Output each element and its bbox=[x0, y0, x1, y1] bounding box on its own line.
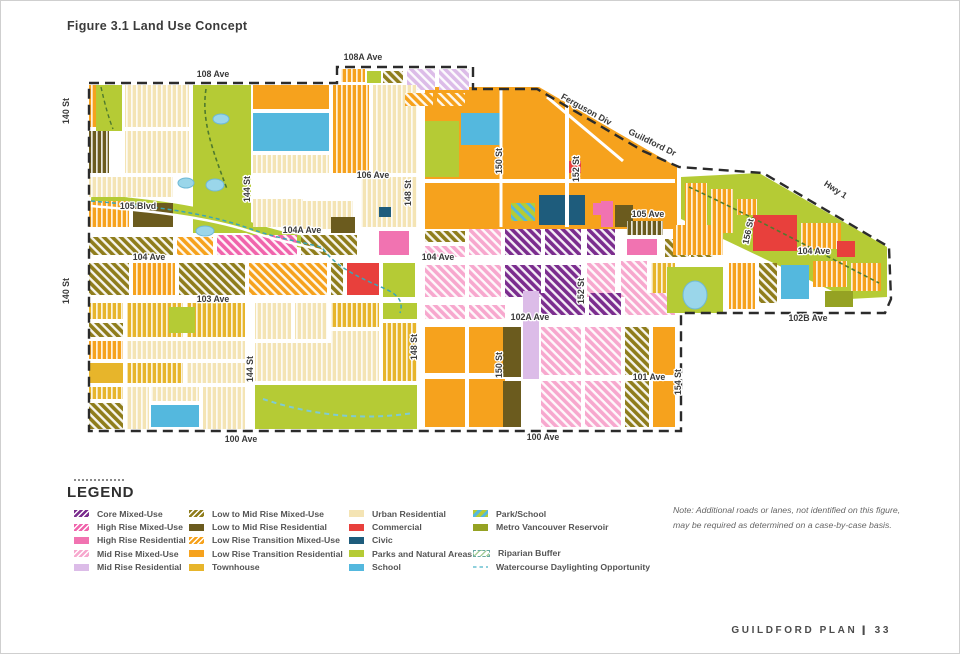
street-label: 105 Ave bbox=[632, 209, 665, 219]
parcel-overlay bbox=[405, 93, 433, 106]
legend-item-label: Metro Vancouver Reservoir bbox=[496, 522, 609, 532]
parcel bbox=[653, 381, 675, 427]
street-label: 108A Ave bbox=[344, 52, 383, 62]
parcel bbox=[461, 113, 501, 145]
parcel bbox=[383, 303, 417, 319]
parcel bbox=[379, 207, 391, 217]
parcel bbox=[653, 327, 675, 375]
parcel-overlay bbox=[331, 331, 379, 381]
parcel bbox=[503, 327, 521, 377]
legend-item: High Rise Mixed-Use bbox=[74, 520, 186, 533]
parcel-overlay bbox=[511, 203, 535, 221]
legend-column: Park/SchoolMetro Vancouver ReservoirRipa… bbox=[473, 507, 650, 574]
parcel-overlay bbox=[127, 341, 245, 359]
street-label: 144 St bbox=[242, 176, 252, 202]
legend-item-label: Parks and Natural Areas bbox=[372, 549, 472, 559]
legend-item-label: Riparian Buffer bbox=[498, 548, 561, 558]
legend-item-label: Mid Rise Mixed-Use bbox=[97, 549, 179, 559]
parcel-overlay bbox=[217, 235, 297, 255]
legend-swatch-cv bbox=[349, 537, 364, 544]
parcel-overlay bbox=[541, 381, 581, 427]
legend-swatch-ur bbox=[349, 510, 364, 517]
parcel bbox=[379, 231, 409, 255]
street-label: Hwy 1 bbox=[822, 178, 849, 200]
pond bbox=[196, 226, 214, 236]
street-label: 104A Ave bbox=[283, 225, 322, 235]
parcel-overlay bbox=[469, 229, 501, 255]
legend-item-label: Park/School bbox=[496, 509, 546, 519]
legend-swatch-wd bbox=[473, 566, 488, 568]
parcel bbox=[523, 291, 539, 379]
legend-divider bbox=[74, 479, 124, 481]
legend-item-label: Low to Mid Rise Residential bbox=[212, 522, 327, 532]
legend-item: School bbox=[349, 561, 472, 574]
note-line: may be required as determined on a case-… bbox=[673, 518, 913, 533]
legend-item: Parks and Natural Areas bbox=[349, 547, 472, 560]
legend-swatch-rb bbox=[473, 550, 490, 557]
parcel-overlay bbox=[673, 225, 723, 255]
legend-item: Core Mixed-Use bbox=[74, 507, 186, 520]
parcel bbox=[825, 291, 853, 307]
parcel bbox=[753, 215, 797, 251]
note-line: Note: Additional roads or lanes, not ide… bbox=[673, 503, 913, 518]
parcel-overlay bbox=[133, 263, 175, 295]
parcel-overlay bbox=[759, 263, 777, 303]
parcel bbox=[253, 113, 329, 151]
parcel-overlay bbox=[545, 229, 581, 255]
legend-item: Mid Rise Residential bbox=[74, 561, 186, 574]
parcel-overlay bbox=[89, 341, 123, 359]
legend-item-label: High Rise Residential bbox=[97, 535, 186, 545]
parcel-overlay bbox=[587, 263, 615, 297]
street-label: 106 Ave bbox=[357, 170, 390, 180]
parcel-overlay bbox=[125, 85, 189, 127]
street-label: 140 St bbox=[61, 98, 71, 124]
pond bbox=[206, 179, 224, 191]
parcel bbox=[89, 363, 123, 383]
parcel bbox=[837, 241, 855, 257]
pond bbox=[213, 114, 229, 124]
legend-swatch-sc bbox=[349, 564, 364, 571]
legend-item: Low Rise Transition Mixed-Use bbox=[189, 534, 343, 547]
parcel bbox=[627, 239, 657, 255]
parcel-overlay bbox=[89, 131, 109, 173]
legend-item-label: Core Mixed-Use bbox=[97, 509, 163, 519]
parcel-overlay bbox=[625, 381, 649, 427]
legend-item-label: Townhouse bbox=[212, 562, 260, 572]
legend-item-label: Watercourse Daylighting Opportunity bbox=[496, 562, 650, 572]
parcel bbox=[469, 379, 505, 427]
parcel-overlay bbox=[333, 85, 369, 173]
legend-swatch-ltm bbox=[189, 537, 204, 544]
legend-item: Park/School bbox=[473, 507, 650, 520]
parcel-overlay bbox=[187, 363, 245, 383]
legend-item: Urban Residential bbox=[349, 507, 472, 520]
parcel-overlay bbox=[585, 327, 621, 375]
parcel-overlay bbox=[439, 69, 469, 90]
parcel-overlay bbox=[89, 303, 123, 319]
parcel-overlay bbox=[737, 199, 757, 215]
legend-item: Civic bbox=[349, 534, 472, 547]
parcel bbox=[367, 71, 381, 83]
legend-item-label: School bbox=[372, 562, 401, 572]
parcel-overlay bbox=[255, 303, 291, 339]
street-label: 154 St bbox=[673, 369, 683, 395]
street-label: 100 Ave bbox=[225, 434, 258, 444]
parcel-overlay bbox=[589, 293, 621, 315]
legend-item-label: Civic bbox=[372, 535, 393, 545]
legend-swatch-cm bbox=[74, 510, 89, 517]
legend-item: Mid Rise Mixed-Use bbox=[74, 547, 186, 560]
street-label: 104 Ave bbox=[133, 252, 166, 262]
street-label: 102A Ave bbox=[511, 312, 550, 322]
parcel-overlay bbox=[89, 177, 173, 197]
legend-item-label: Urban Residential bbox=[372, 509, 446, 519]
street-label: 152 St bbox=[576, 278, 586, 304]
street-label: 150 St bbox=[494, 148, 504, 174]
street-label: 140 St bbox=[61, 278, 71, 304]
legend-column: Urban ResidentialCommercialCivicParks an… bbox=[349, 507, 472, 574]
pond bbox=[683, 281, 707, 309]
parcel bbox=[331, 217, 355, 233]
street-label: 144 St bbox=[245, 356, 255, 382]
legend-item: Low to Mid Rise Residential bbox=[189, 520, 343, 533]
parcel-overlay bbox=[89, 263, 129, 295]
parcels bbox=[89, 69, 881, 429]
legend-item: Townhouse bbox=[189, 561, 343, 574]
legend-column: Core Mixed-UseHigh Rise Mixed-UseHigh Ri… bbox=[74, 507, 186, 574]
legend-item-label: Low Rise Transition Residential bbox=[212, 549, 343, 559]
legend-item: High Rise Residential bbox=[74, 534, 186, 547]
legend-swatch-th bbox=[189, 564, 204, 571]
legend-item: Riparian Buffer bbox=[473, 547, 650, 560]
parcel-overlay bbox=[437, 93, 465, 106]
parcel-overlay bbox=[89, 387, 123, 399]
legend-swatch-co bbox=[349, 524, 364, 531]
legend-item-label: Low to Mid Rise Mixed-Use bbox=[212, 509, 324, 519]
street-label: 105 Blvd bbox=[120, 201, 156, 211]
legend-swatch-mr bbox=[74, 564, 89, 571]
legend-item: Commercial bbox=[349, 520, 472, 533]
street-label: 101 Ave bbox=[633, 372, 666, 382]
street-label: 150 St bbox=[494, 352, 504, 378]
legend-swatch-rv bbox=[473, 524, 488, 531]
legend-swatch-ltr bbox=[189, 550, 204, 557]
legend-swatch-hm bbox=[74, 524, 89, 531]
parcel-overlay bbox=[179, 263, 245, 295]
parcel-overlay bbox=[729, 263, 755, 309]
legend-swatch-hr bbox=[74, 537, 89, 544]
parcel-overlay bbox=[249, 263, 327, 295]
legend-item: Metro Vancouver Reservoir bbox=[473, 520, 650, 533]
parcel-overlay bbox=[621, 261, 647, 297]
footer-page-number: 33 bbox=[875, 625, 891, 636]
legend-swatch-lmr bbox=[189, 524, 204, 531]
parcel bbox=[383, 263, 415, 297]
parcel bbox=[503, 381, 521, 427]
parcel-overlay bbox=[469, 265, 501, 297]
legend-swatch-pk bbox=[349, 550, 364, 557]
legend-item-label: Low Rise Transition Mixed-Use bbox=[212, 535, 340, 545]
parcel bbox=[425, 121, 459, 177]
parcel-overlay bbox=[253, 155, 329, 173]
parcel-overlay bbox=[125, 131, 189, 173]
parcel-overlay bbox=[89, 403, 123, 429]
parcel bbox=[425, 379, 465, 427]
parcel-overlay bbox=[425, 231, 465, 242]
street-label: 108 Ave bbox=[197, 69, 230, 79]
parcel-overlay bbox=[425, 305, 465, 319]
parcel-overlay bbox=[505, 229, 541, 255]
legend-swatch-mm bbox=[74, 550, 89, 557]
note-text: Note: Additional roads or lanes, not ide… bbox=[673, 503, 913, 532]
parcel-overlay bbox=[587, 229, 615, 255]
parcel-overlay bbox=[341, 69, 365, 82]
parcel-overlay bbox=[541, 327, 581, 375]
parcel-overlay bbox=[295, 303, 327, 339]
footer-separator: | bbox=[862, 625, 871, 636]
parcel bbox=[193, 85, 251, 233]
parcel bbox=[781, 265, 809, 299]
legend-swatch-ps bbox=[473, 510, 488, 517]
parcel-overlay bbox=[127, 363, 183, 383]
street-label: 104 Ave bbox=[798, 246, 831, 256]
street-label: 103 Ave bbox=[197, 294, 230, 304]
parcel-overlay bbox=[469, 305, 505, 319]
page-footer: GUILDFORD PLAN|33 bbox=[731, 625, 891, 636]
parcel-overlay bbox=[203, 387, 245, 429]
legend-item-label: High Rise Mixed-Use bbox=[97, 522, 183, 532]
legend-item: Low to Mid Rise Mixed-Use bbox=[189, 507, 343, 520]
parcel bbox=[539, 195, 585, 225]
land-use-map: 108 Ave108A AveFerguson DivGuildford DrH… bbox=[1, 1, 960, 471]
legend: LEGEND Core Mixed-UseHigh Rise Mixed-Use… bbox=[1, 471, 960, 581]
document-page: Figure 3.1 Land Use Concept bbox=[0, 0, 960, 654]
parcel-overlay bbox=[301, 235, 357, 255]
legend-item: Low Rise Transition Residential bbox=[189, 547, 343, 560]
legend-item-label: Mid Rise Residential bbox=[97, 562, 181, 572]
street-label: 102B Ave bbox=[789, 313, 828, 323]
parcel bbox=[96, 85, 122, 131]
legend-swatch-lmm bbox=[189, 510, 204, 517]
parcel-overlay bbox=[89, 323, 123, 337]
legend-column: Low to Mid Rise Mixed-UseLow to Mid Rise… bbox=[189, 507, 343, 574]
parcel-overlay bbox=[151, 387, 199, 401]
pond bbox=[178, 178, 194, 188]
legend-title: LEGEND bbox=[67, 484, 134, 501]
parcel bbox=[151, 405, 199, 427]
street-label: 148 St bbox=[403, 180, 413, 206]
parcel-overlay bbox=[625, 327, 649, 375]
parcel bbox=[255, 385, 417, 429]
street-label: 100 Ave bbox=[527, 432, 560, 442]
parcel-overlay bbox=[331, 263, 343, 295]
parcel bbox=[169, 307, 195, 333]
footer-plan-name: GUILDFORD PLAN bbox=[731, 625, 857, 636]
legend-item: Watercourse Daylighting Opportunity bbox=[473, 560, 650, 573]
parcel-overlay bbox=[331, 303, 379, 327]
parcel-overlay bbox=[425, 265, 465, 297]
street-label: 152 St bbox=[571, 156, 581, 182]
parcel-overlay bbox=[383, 71, 403, 83]
legend-item-label: Commercial bbox=[372, 522, 422, 532]
parcel-overlay bbox=[127, 387, 149, 429]
parcel bbox=[593, 203, 611, 215]
parcel-overlay bbox=[255, 343, 331, 381]
street-label: 104 Ave bbox=[422, 252, 455, 262]
parcel-overlay bbox=[187, 303, 245, 337]
parcel bbox=[425, 327, 465, 373]
parcel-overlay bbox=[177, 237, 213, 255]
parcel bbox=[253, 85, 329, 109]
parcel-overlay bbox=[627, 221, 663, 235]
street-label: 148 St bbox=[409, 334, 419, 360]
parcel-overlay bbox=[585, 381, 621, 427]
parcel-overlay bbox=[813, 261, 847, 287]
